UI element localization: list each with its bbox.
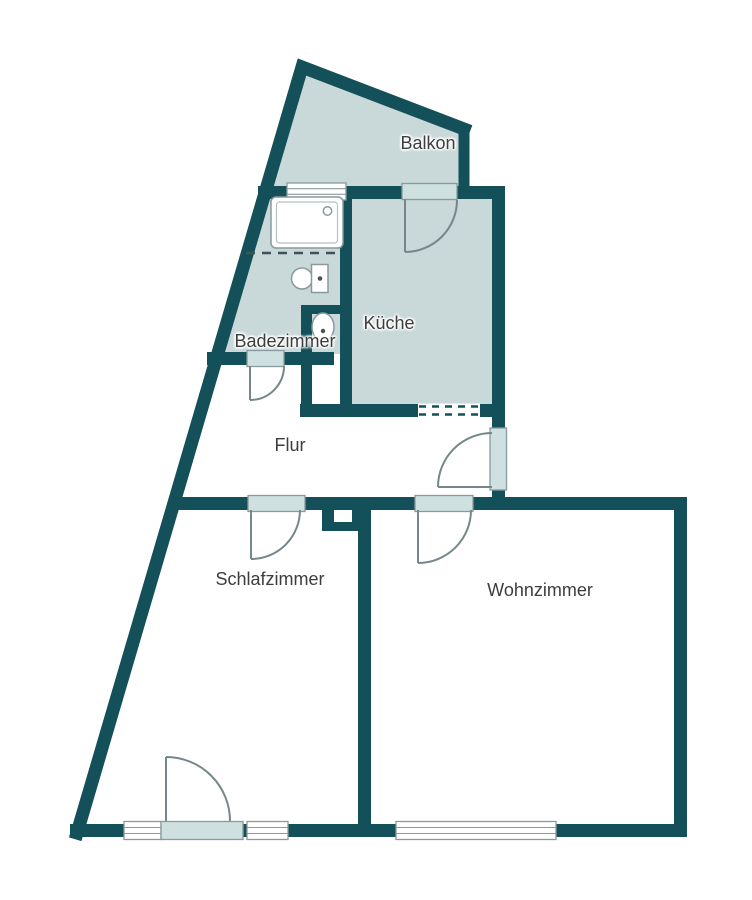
tub-drain xyxy=(323,207,331,215)
schlafzimmer-door xyxy=(248,496,305,560)
toilet-bowl xyxy=(292,268,313,289)
wohnzimmer-door xyxy=(415,496,473,564)
chimney-flue-hole xyxy=(334,510,352,522)
door-panel xyxy=(161,822,243,840)
room-label-balkon: Balkon xyxy=(400,134,455,154)
room-label-schlafzimmer: Schlafzimmer xyxy=(215,570,324,590)
door-panel xyxy=(490,428,507,490)
schlafzimmer-window-right xyxy=(247,822,288,840)
schlafzimmer-window-left xyxy=(124,822,161,840)
door-panel xyxy=(402,184,457,200)
schlafzimmer-balcony-door xyxy=(161,757,243,840)
wall-duct-left xyxy=(301,305,312,417)
kueche-floor xyxy=(340,186,505,410)
door-swing-arc xyxy=(250,366,284,400)
kitchen-pass-through xyxy=(418,404,480,418)
toilet-flush-dot xyxy=(318,276,323,281)
room-label-kueche: Küche xyxy=(363,314,414,334)
tub-outline xyxy=(271,197,343,248)
shower-tub-icon xyxy=(271,197,343,248)
floor-plan-drawing xyxy=(0,0,752,900)
door-swing-arc xyxy=(166,757,230,821)
wohnzimmer-window xyxy=(396,822,556,840)
window-frame xyxy=(247,822,288,840)
window-frame xyxy=(124,822,161,840)
door-panel xyxy=(248,496,305,512)
wall-outer-right xyxy=(674,497,687,837)
door-panel xyxy=(415,496,473,512)
wall-room-divider xyxy=(358,503,371,831)
door-swing-arc xyxy=(418,510,471,563)
apartment-entrance-door xyxy=(438,428,507,490)
window-frame xyxy=(396,822,556,840)
room-label-badezimmer: Badezimmer xyxy=(234,332,335,352)
room-label-flur: Flur xyxy=(275,436,306,456)
door-swing-arc xyxy=(251,510,300,559)
bathroom-door xyxy=(247,351,284,401)
floor-plan: Balkon Küche Badezimmer Flur Schlafzimme… xyxy=(0,0,752,900)
door-swing-arc xyxy=(438,433,492,487)
room-label-wohnzimmer: Wohnzimmer xyxy=(487,581,593,601)
door-panel xyxy=(247,351,284,367)
